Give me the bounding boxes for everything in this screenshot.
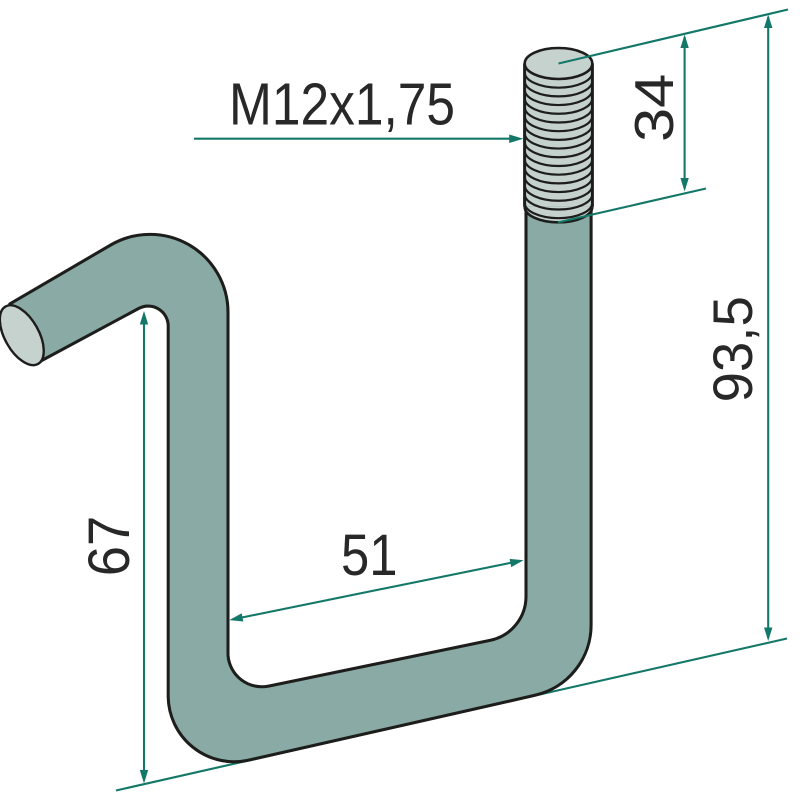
svg-text:93,5: 93,5 [701,296,764,402]
svg-text:M12x1,75: M12x1,75 [229,71,455,137]
svg-text:67: 67 [76,516,141,576]
svg-text:51: 51 [341,523,397,588]
svg-text:34: 34 [624,74,685,142]
